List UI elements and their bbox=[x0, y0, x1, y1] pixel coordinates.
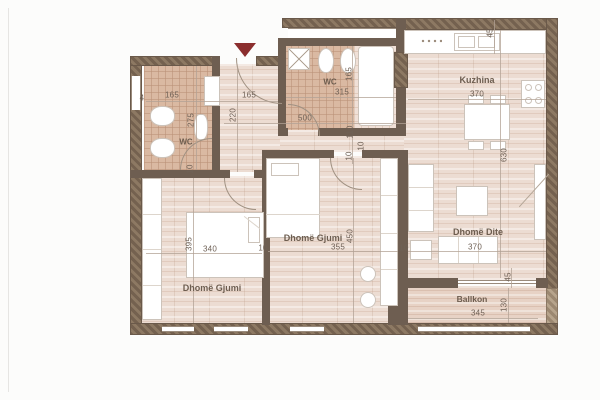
dim-line bbox=[286, 97, 396, 98]
wardrobe-mid bbox=[380, 158, 398, 306]
dining-chair bbox=[468, 141, 484, 150]
bathtub-icon bbox=[358, 46, 394, 126]
dim-living-width: 370 bbox=[468, 243, 482, 252]
dim-line bbox=[146, 101, 278, 102]
stool-icon bbox=[360, 292, 376, 308]
stove-icon bbox=[521, 80, 545, 108]
window-living-balcony bbox=[458, 280, 538, 284]
dim-line bbox=[352, 46, 353, 128]
kitchen-sink-basin-1 bbox=[458, 36, 475, 48]
washing-machine-icon bbox=[288, 48, 310, 70]
dim-line bbox=[224, 123, 406, 124]
room-label-bedroom-mid: Dhomë Gjumi bbox=[284, 233, 343, 243]
room-label-kitchen: Kuzhina bbox=[460, 75, 495, 85]
entry-arrow-icon bbox=[234, 43, 256, 57]
dim-line bbox=[196, 66, 197, 170]
sofa-side bbox=[408, 164, 434, 232]
wall-duct-block bbox=[394, 52, 408, 88]
window-bottom-1 bbox=[162, 326, 194, 332]
side-table bbox=[410, 240, 432, 260]
room-label-living: Dhomë Dite bbox=[453, 227, 503, 237]
wall-top-right bbox=[400, 18, 557, 30]
room-label-bedroom-left: Dhomë Gjumi bbox=[183, 283, 242, 293]
wall-bedmid-top-left bbox=[262, 150, 334, 158]
dim-wall-a: 10 bbox=[186, 164, 195, 173]
dim-bedleft-width: 340 bbox=[203, 245, 217, 254]
dining-table bbox=[464, 104, 510, 140]
room-label-wc2: WC bbox=[323, 78, 336, 87]
room-label-balcony: Ballkon bbox=[457, 294, 488, 304]
dim-hall-length: 500 bbox=[298, 114, 312, 123]
dim-wall-b: 10 bbox=[345, 151, 354, 160]
wall-balcony-post-right bbox=[536, 278, 548, 288]
dim-wc1-width: 165 bbox=[165, 91, 179, 100]
wc2-sink-icon bbox=[318, 48, 334, 73]
wall-wc1-bottom bbox=[130, 170, 230, 178]
wall-wc1-right bbox=[212, 56, 220, 178]
wall-top-mid bbox=[282, 18, 404, 28]
dim-entry-width: 165 bbox=[242, 91, 256, 100]
toilet-icon bbox=[150, 106, 175, 126]
dim-balcony-depth: 130 bbox=[500, 298, 509, 312]
dim-balcony-width: 345 bbox=[471, 309, 485, 318]
tv-stand bbox=[534, 164, 546, 240]
dim-wall-c: 10 bbox=[357, 141, 366, 150]
wall-right-exterior bbox=[546, 18, 558, 290]
kitchen-sink-basin-2 bbox=[478, 36, 495, 48]
wall-wc2-bottom-left bbox=[278, 128, 288, 136]
dim-kitchen-width: 370 bbox=[470, 90, 484, 99]
dim-wc2-height: 165 bbox=[345, 67, 354, 81]
dim-entry-depth: 220 bbox=[229, 108, 238, 122]
wall-wc2-bottom-right bbox=[318, 128, 406, 136]
pillow-mid bbox=[271, 163, 299, 176]
dim-wall-e: 10 bbox=[399, 244, 408, 253]
dim-wall-d: 10 bbox=[258, 244, 267, 253]
closet-left bbox=[142, 178, 162, 320]
stool-icon bbox=[360, 266, 376, 282]
room-label-wc1: WC bbox=[179, 138, 192, 147]
dim-bedmid-width: 355 bbox=[331, 243, 345, 252]
bed-mid-sheet-line bbox=[266, 214, 320, 215]
dim-wc1-height: 275 bbox=[187, 113, 196, 127]
dim-partial: 4 bbox=[140, 94, 145, 103]
window-bottom-2 bbox=[214, 326, 248, 332]
window-bottom-3 bbox=[290, 326, 324, 332]
dim-wc2-width: 315 bbox=[335, 88, 349, 97]
wall-top-left bbox=[130, 56, 220, 66]
wall-wc2-inner-top bbox=[282, 38, 404, 46]
dim-line bbox=[408, 318, 538, 319]
dim-bedmid-height: 450 bbox=[346, 229, 355, 243]
dim-kitchen-top-offset: 45 bbox=[486, 28, 495, 37]
wall-living-balcony bbox=[398, 278, 458, 288]
dim-balcony-side: 45 bbox=[504, 272, 513, 281]
floor-plan-canvas: 4 165 165 275 220 315 165 500 110 10 10 … bbox=[0, 0, 600, 400]
counter-items-dots bbox=[420, 38, 442, 44]
dim-line bbox=[408, 99, 546, 100]
page-edge-line bbox=[8, 8, 9, 392]
bidet-icon bbox=[150, 138, 175, 158]
dim-bedleft-height: 395 bbox=[185, 237, 194, 251]
dim-living-height: 630 bbox=[500, 148, 509, 162]
coffee-table bbox=[456, 186, 488, 216]
window-balcony-front bbox=[418, 326, 530, 332]
dim-hall-width: 110 bbox=[346, 125, 355, 138]
